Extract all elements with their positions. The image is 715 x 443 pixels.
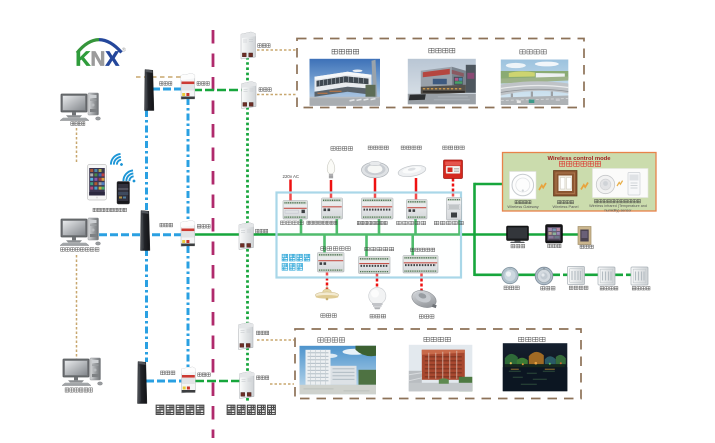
- svg-text:Wireless control mode: Wireless control mode: [547, 156, 611, 162]
- svg-text:®: ®: [122, 47, 126, 54]
- svg-text:220v AC: 220v AC: [283, 174, 300, 179]
- svg-text:humidity) sensor: humidity) sensor: [604, 208, 632, 212]
- svg-text:Wireless Panel: Wireless Panel: [553, 204, 579, 209]
- svg-text:Wireless Gateway: Wireless Gateway: [507, 204, 538, 209]
- svg-text:KNX: KNX: [76, 48, 120, 71]
